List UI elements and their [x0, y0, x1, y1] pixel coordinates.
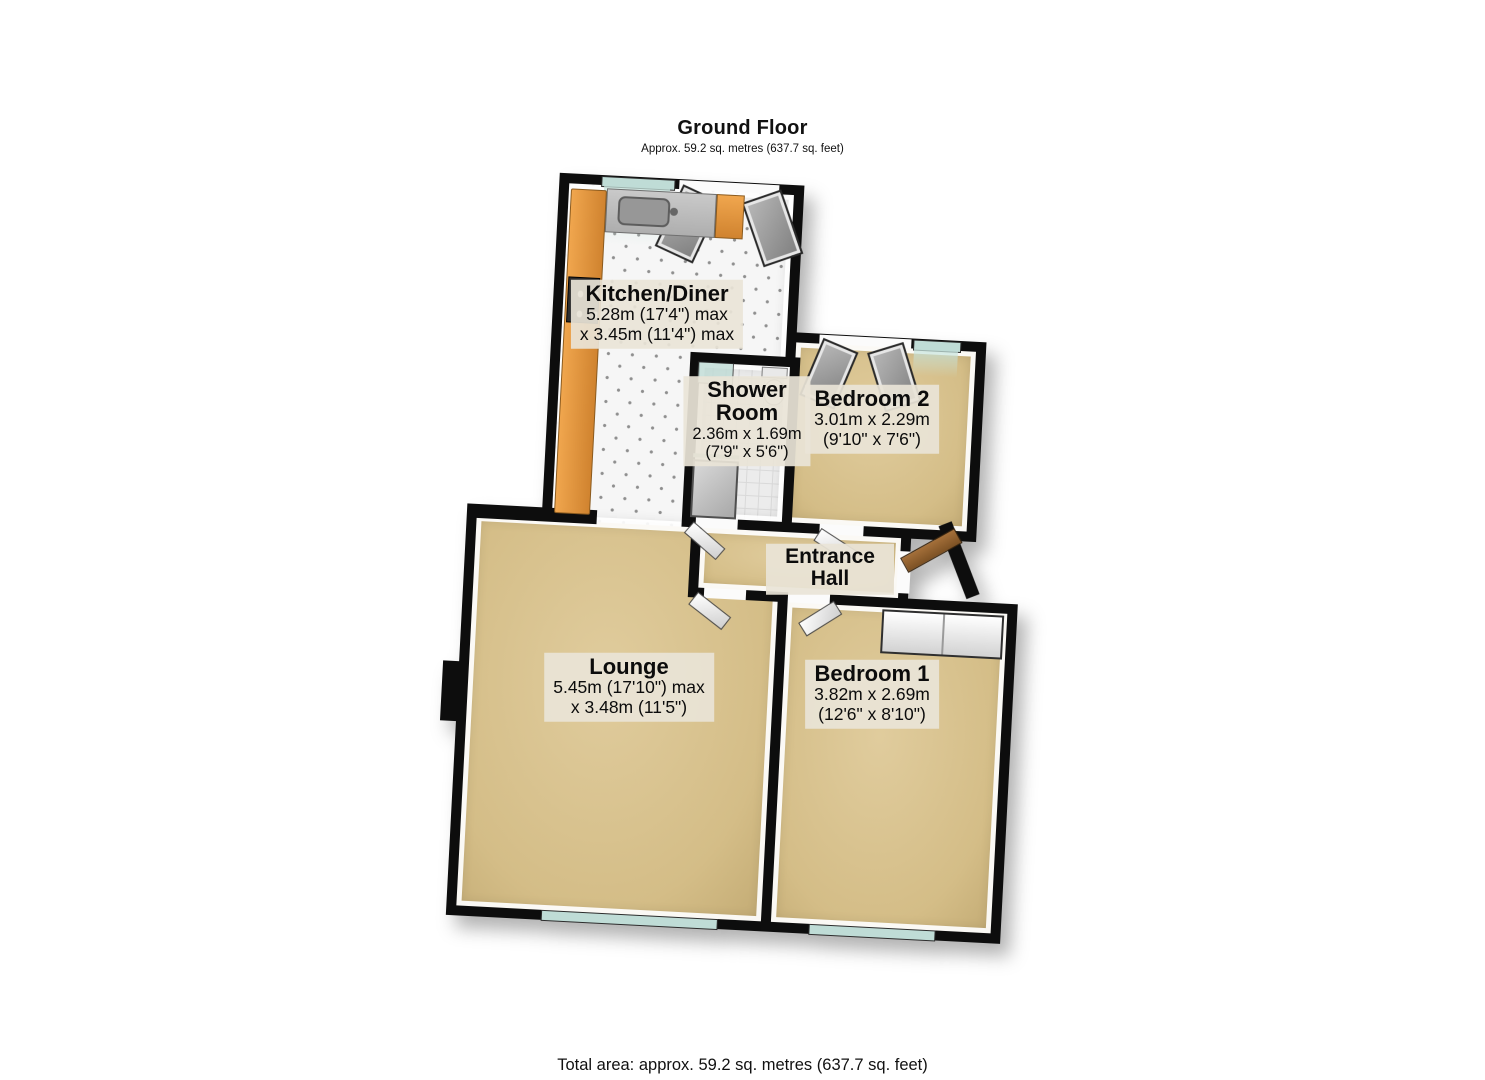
room-name: Bedroom 1 — [814, 662, 930, 685]
chimney-breast-wall — [440, 660, 467, 721]
room-dimensions-imperial: x 3.48m (11'5") — [553, 698, 705, 718]
label-shower-room: Shower Room 2.36m x 1.69m (7'9" x 5'6") — [683, 376, 810, 466]
room-dimensions-imperial: (7'9" x 5'6") — [692, 443, 801, 461]
room-name: Shower Room — [697, 378, 797, 425]
kitchen-sink — [617, 196, 670, 228]
room-name: Entrance Hall — [775, 546, 885, 591]
room-dimensions-metric: 3.01m x 2.29m — [814, 410, 930, 430]
bedroom1-wardrobe — [880, 609, 1004, 659]
label-lounge: Lounge 5.45m (17'10") max x 3.48m (11'5"… — [544, 653, 714, 722]
room-name: Bedroom 2 — [814, 387, 930, 410]
room-dimensions-metric: 5.45m (17'10") max — [553, 678, 705, 698]
label-bedroom-1: Bedroom 1 3.82m x 2.69m (12'6" x 8'10") — [805, 660, 939, 729]
room-dimensions-metric: 5.28m (17'4") max — [580, 305, 734, 325]
floor-title: Ground Floor — [0, 117, 1485, 140]
room-name: Lounge — [553, 655, 705, 678]
floor-header: Ground Floor Approx. 59.2 sq. metres (63… — [0, 117, 1485, 155]
room-dimensions-imperial: x 3.45m (11'4") max — [580, 325, 734, 345]
room-name: Kitchen/Diner — [580, 282, 734, 305]
floorplan-drawing — [0, 0, 1485, 1080]
label-kitchen-diner: Kitchen/Diner 5.28m (17'4") max x 3.45m … — [571, 280, 743, 349]
label-bedroom-2: Bedroom 2 3.01m x 2.29m (9'10" x 7'6") — [805, 385, 939, 454]
room-dimensions-imperial: (9'10" x 7'6") — [814, 430, 930, 450]
lounge-door-opening — [704, 588, 746, 600]
room-dimensions-metric: 3.82m x 2.69m — [814, 685, 930, 705]
floor-subtitle: Approx. 59.2 sq. metres (637.7 sq. feet) — [0, 143, 1485, 155]
shower-tray — [690, 459, 739, 519]
room-dimensions-metric: 2.36m x 1.69m — [692, 425, 801, 443]
bedroom2-window-light — [913, 350, 958, 378]
kitchen-counter-top — [715, 194, 745, 239]
floorplan-page: Ground Floor Approx. 59.2 sq. metres (63… — [0, 0, 1485, 1080]
label-entrance-hall: Entrance Hall — [766, 544, 894, 595]
room-dimensions-imperial: (12'6" x 8'10") — [814, 705, 930, 725]
total-area-text: Total area: approx. 59.2 sq. metres (637… — [0, 1056, 1485, 1075]
